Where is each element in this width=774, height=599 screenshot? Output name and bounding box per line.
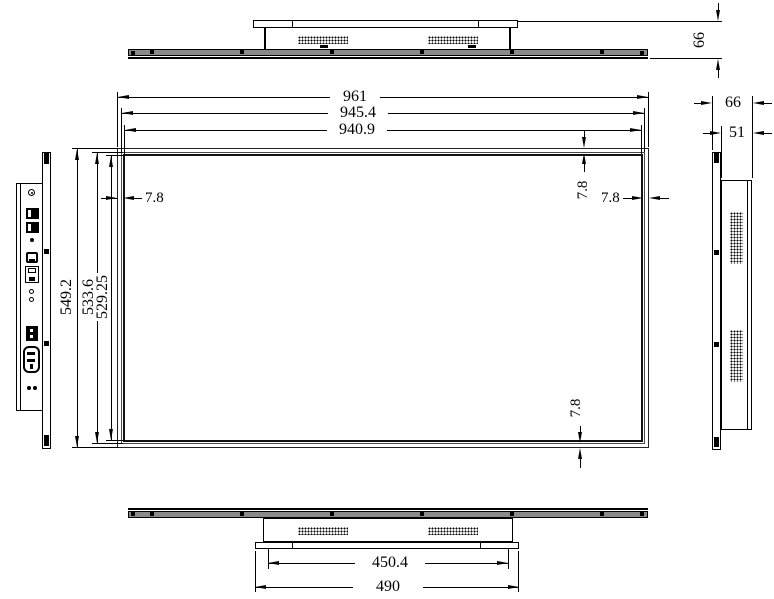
arrowhead bbox=[109, 429, 113, 440]
dim-label-width-945: 945.4 bbox=[328, 105, 388, 121]
dim-label-bezel-top: 7.8 bbox=[576, 172, 592, 208]
arrowhead bbox=[109, 156, 113, 167]
panel-end-cap bbox=[714, 153, 719, 163]
arrowhead bbox=[633, 111, 644, 115]
panel-end-cap bbox=[44, 153, 49, 164]
arrowhead bbox=[710, 131, 721, 135]
arrowhead bbox=[255, 585, 266, 589]
ac-pin bbox=[27, 359, 35, 362]
back-cover-line bbox=[747, 181, 748, 429]
screw-mark bbox=[44, 341, 49, 346]
screw-mark bbox=[600, 512, 604, 516]
screw-mark bbox=[420, 512, 424, 516]
ac-pin bbox=[30, 364, 33, 369]
back-box-side bbox=[264, 27, 266, 49]
arrowhead bbox=[716, 10, 720, 21]
switch-dot bbox=[30, 329, 33, 332]
panel-edge-line bbox=[128, 57, 648, 59]
hdmi-pin-bar bbox=[29, 259, 35, 261]
flange-divider bbox=[292, 543, 293, 548]
dim-label-width-940: 940.9 bbox=[327, 122, 387, 138]
arrowhead bbox=[632, 196, 643, 200]
arrowhead bbox=[118, 95, 129, 99]
screw-mark bbox=[714, 342, 719, 347]
screw-mark bbox=[150, 50, 154, 54]
flange-divider bbox=[478, 21, 479, 27]
screw-mark bbox=[131, 51, 135, 55]
dim-label-bottom-outer-width: 490 bbox=[353, 579, 423, 595]
screw-mark bbox=[44, 249, 49, 254]
arrowhead bbox=[75, 436, 79, 447]
panel-edge-line bbox=[128, 508, 648, 510]
hdmi-port-icon bbox=[26, 252, 38, 263]
arrowhead bbox=[637, 95, 648, 99]
dim-label-bezel-left: 7.8 bbox=[144, 191, 165, 206]
extension-line bbox=[650, 58, 722, 59]
mount-tab bbox=[320, 45, 328, 48]
dimension-line bbox=[659, 198, 669, 199]
flange-divider bbox=[292, 21, 293, 27]
screw-mark bbox=[640, 51, 644, 55]
panel-end-cap bbox=[44, 435, 49, 446]
vent-grille-icon bbox=[298, 36, 348, 44]
screw-dot-icon bbox=[27, 386, 31, 390]
dim-label-right-depth-total: 66 bbox=[717, 95, 749, 111]
dimension-line bbox=[764, 103, 772, 104]
dim-label-bezel-right: 7.8 bbox=[600, 191, 621, 206]
arrowhead bbox=[578, 432, 582, 443]
screw-mark bbox=[510, 50, 514, 54]
button-icon bbox=[29, 297, 34, 302]
screw-mark bbox=[420, 50, 424, 54]
ethernet-inner bbox=[28, 268, 36, 273]
ac-pin bbox=[27, 352, 35, 355]
extension-line bbox=[641, 125, 642, 154]
dim-label-height-549: 549.2 bbox=[59, 273, 75, 321]
dim-label-top-depth: 66 bbox=[692, 22, 708, 58]
arrowhead bbox=[122, 111, 133, 115]
usb-slot bbox=[28, 224, 31, 231]
dimension-line bbox=[77, 149, 78, 447]
arrowhead bbox=[268, 561, 279, 565]
arrowhead bbox=[753, 131, 764, 135]
ethernet-tab bbox=[29, 277, 35, 281]
arrowhead bbox=[95, 153, 99, 164]
extension-line bbox=[712, 96, 713, 150]
mount-tab bbox=[468, 45, 476, 48]
screw-mark bbox=[330, 50, 334, 54]
extension-line bbox=[72, 447, 118, 448]
vent-grille-icon bbox=[298, 527, 348, 535]
back-box-side bbox=[509, 27, 511, 49]
extension-line bbox=[106, 440, 125, 441]
extension-line bbox=[752, 96, 753, 178]
bottom-view-panel bbox=[128, 511, 648, 518]
extension-line bbox=[92, 443, 123, 444]
dim-label-right-depth-body: 51 bbox=[722, 125, 752, 141]
screw-mark bbox=[150, 512, 154, 516]
vent-grille-icon bbox=[730, 330, 743, 382]
side-panel bbox=[42, 152, 51, 449]
arrowhead bbox=[75, 149, 79, 160]
extension-line bbox=[117, 92, 118, 147]
dimension-line bbox=[580, 458, 581, 468]
flange-divider bbox=[480, 543, 481, 548]
dim-label-bezel-bottom: 7.8 bbox=[569, 390, 585, 426]
screw-mark bbox=[240, 50, 244, 54]
dimension-line bbox=[764, 133, 772, 134]
vent-grille-icon bbox=[428, 527, 478, 535]
dim-label-width-961: 961 bbox=[330, 89, 380, 105]
extension-line bbox=[268, 549, 269, 569]
dimension-line bbox=[718, 69, 719, 78]
screw-mark bbox=[640, 512, 644, 516]
top-view-panel bbox=[128, 49, 648, 56]
vent-grille-icon bbox=[428, 36, 478, 44]
panel-end-cap bbox=[714, 437, 719, 447]
extension-line bbox=[644, 108, 645, 152]
arrowhead bbox=[95, 432, 99, 443]
io-face-line bbox=[20, 184, 21, 410]
arrowhead bbox=[753, 101, 764, 105]
screw-dot-icon bbox=[33, 386, 37, 390]
screw-mark bbox=[600, 50, 604, 54]
arrowhead bbox=[508, 585, 519, 589]
arrowhead bbox=[125, 128, 136, 132]
button-icon bbox=[29, 289, 34, 294]
extension-line bbox=[648, 92, 649, 147]
arrowhead bbox=[582, 137, 586, 148]
arrowhead bbox=[497, 561, 508, 565]
screw-dot-icon bbox=[31, 192, 33, 194]
arrowhead bbox=[630, 128, 641, 132]
led-dot-icon bbox=[30, 238, 34, 242]
arrowhead bbox=[701, 101, 712, 105]
dim-label-bottom-inner-width: 450.4 bbox=[355, 555, 425, 571]
dim-label-height-529: 529.25 bbox=[95, 273, 111, 321]
dimension-line bbox=[128, 198, 142, 199]
extension-line bbox=[508, 549, 509, 569]
screw-mark bbox=[714, 250, 719, 255]
switch-dot bbox=[30, 335, 33, 338]
screw-mark bbox=[240, 512, 244, 516]
dimension-line bbox=[118, 97, 648, 98]
screw-mark bbox=[510, 512, 514, 516]
front-active-area bbox=[123, 154, 643, 442]
side-panel bbox=[712, 152, 721, 450]
screw-mark bbox=[330, 512, 334, 516]
vent-grille-icon bbox=[730, 212, 743, 264]
dimension-drawing: 66 961 945.4 bbox=[0, 0, 774, 599]
usb-slot bbox=[28, 210, 31, 217]
arrowhead bbox=[106, 196, 117, 200]
screw-mark bbox=[131, 512, 135, 516]
